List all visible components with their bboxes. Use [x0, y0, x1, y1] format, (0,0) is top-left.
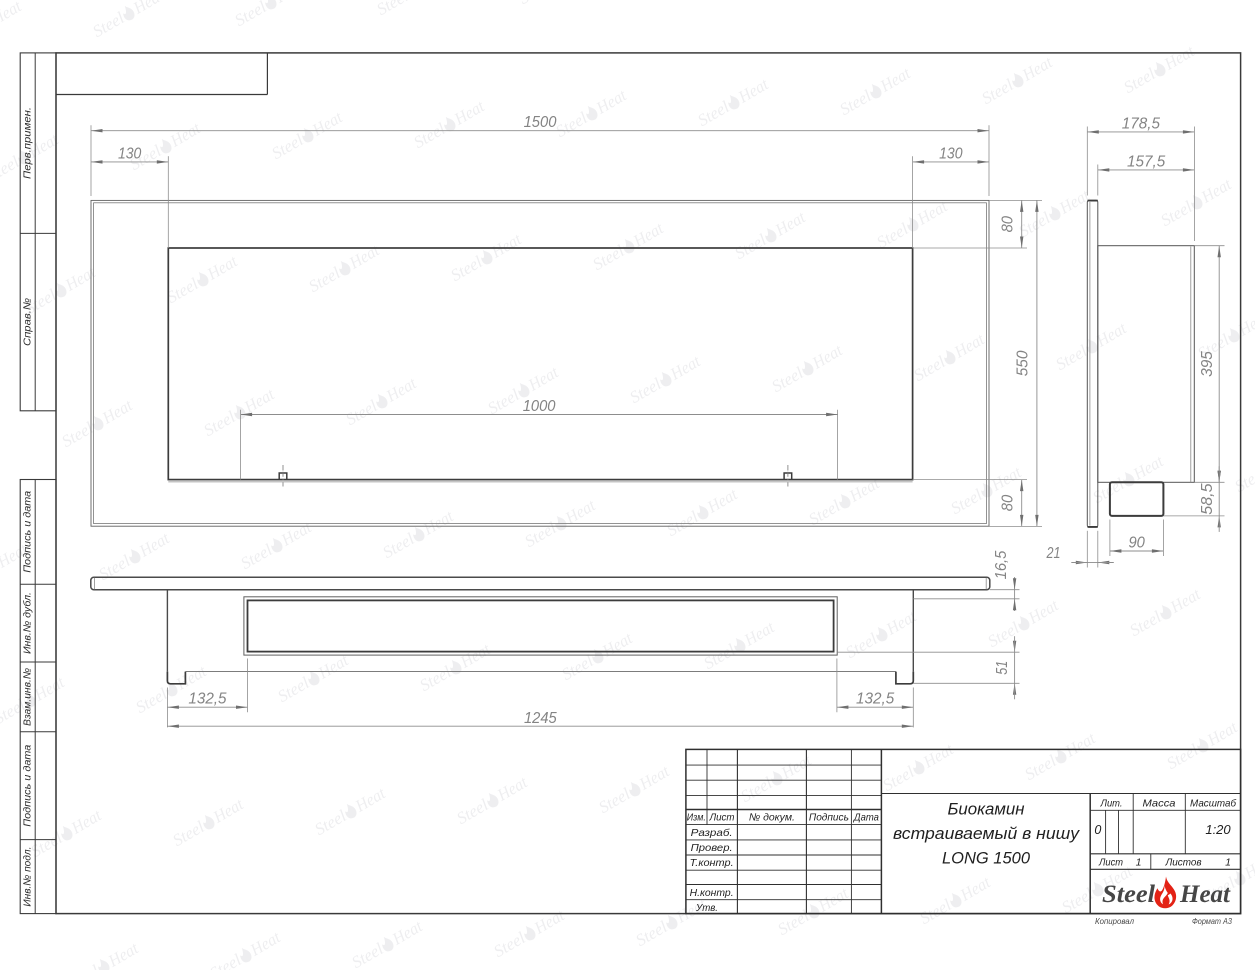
svg-text:Масштаб: Масштаб [1190, 797, 1237, 809]
svg-text:Лит.: Лит. [1100, 797, 1123, 809]
svg-text:Справ.№: Справ.№ [22, 298, 34, 346]
svg-text:395: 395 [1199, 351, 1216, 377]
svg-text:Лист: Лист [709, 812, 735, 824]
svg-text:132,5: 132,5 [856, 691, 894, 708]
svg-text:LONG 1500: LONG 1500 [942, 849, 1031, 868]
svg-text:Провер.: Провер. [691, 842, 733, 854]
svg-text:Утв.: Утв. [695, 902, 718, 914]
svg-text:Изм.: Изм. [687, 812, 706, 824]
svg-text:1000: 1000 [523, 398, 556, 415]
svg-text:1:20: 1:20 [1205, 822, 1231, 837]
svg-text:Взам.инв.№: Взам.инв.№ [22, 668, 34, 726]
svg-text:Инв.№ дубл.: Инв.№ дубл. [22, 592, 34, 654]
svg-text:80: 80 [1000, 495, 1017, 511]
svg-text:132,5: 132,5 [188, 691, 226, 708]
svg-text:21: 21 [1046, 545, 1061, 562]
svg-text:Подпись: Подпись [809, 812, 849, 824]
svg-text:178,5: 178,5 [1122, 115, 1160, 132]
svg-text:Н.контр.: Н.контр. [690, 887, 734, 899]
svg-text:1: 1 [1225, 857, 1231, 869]
svg-text:встраиваемый в нишу: встраиваемый в нишу [893, 824, 1081, 843]
svg-text:58,5: 58,5 [1199, 483, 1216, 514]
svg-text:Т.контр.: Т.контр. [690, 857, 734, 869]
svg-text:130: 130 [939, 145, 962, 162]
svg-text:1500: 1500 [524, 114, 557, 131]
svg-text:Дата: Дата [853, 812, 879, 824]
svg-text:157,5: 157,5 [1127, 153, 1165, 170]
svg-text:1: 1 [1136, 857, 1142, 869]
svg-text:Копировал: Копировал [1095, 916, 1134, 926]
svg-text:130: 130 [118, 145, 141, 162]
svg-text:16,5: 16,5 [993, 551, 1010, 580]
svg-text:Масса: Масса [1143, 797, 1176, 809]
svg-text:Лист: Лист [1098, 857, 1123, 869]
svg-text:Инв.№ подл.: Инв.№ подл. [22, 847, 34, 907]
svg-text:Перв.примен.: Перв.примен. [22, 107, 34, 179]
svg-text:Steel: Steel [1102, 881, 1155, 908]
svg-text:Листов: Листов [1165, 857, 1202, 869]
svg-text:Подпись и дата: Подпись и дата [22, 491, 34, 573]
svg-text:№ докум.: № докум. [749, 812, 795, 824]
svg-text:550: 550 [1015, 350, 1032, 376]
svg-text:80: 80 [1000, 216, 1017, 232]
svg-text:0: 0 [1094, 823, 1101, 837]
svg-text:Разраб.: Разраб. [691, 827, 733, 839]
svg-text:Биокамин: Биокамин [948, 800, 1026, 819]
svg-text:Heat: Heat [1179, 881, 1231, 908]
svg-text:90: 90 [1128, 535, 1144, 552]
svg-text:Формат А3: Формат А3 [1192, 916, 1232, 926]
svg-text:Подпись и дата: Подпись и дата [22, 745, 34, 827]
svg-text:51: 51 [994, 661, 1011, 675]
svg-text:1245: 1245 [524, 710, 557, 727]
